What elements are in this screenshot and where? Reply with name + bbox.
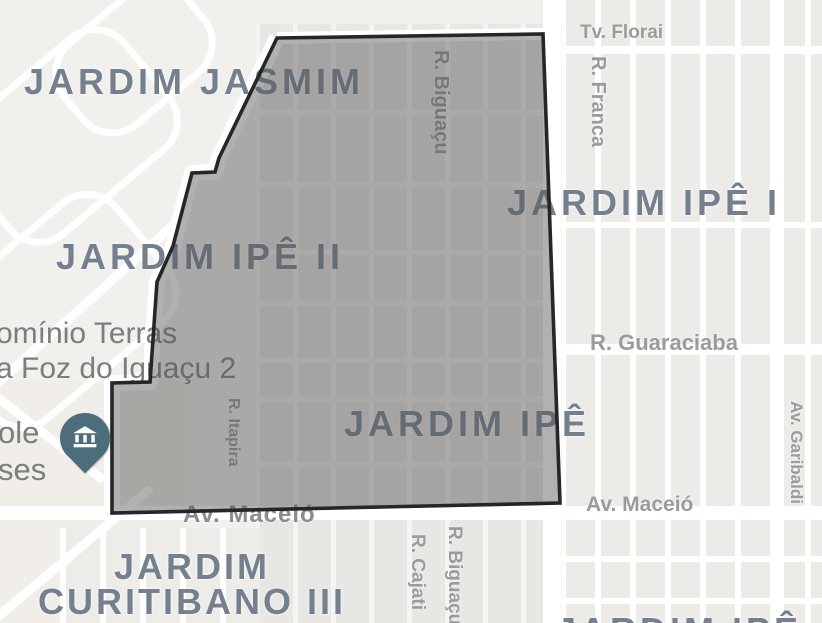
road-av-garibaldi [772, 0, 784, 623]
poi-label-left-line2: ses [0, 451, 46, 488]
district-label-line1: JARDIM [0, 549, 384, 584]
poi-label-left-edge: ole ses [0, 414, 46, 488]
road-center-5 [255, 358, 562, 363]
street-label-av-garibaldi: Av. Garibaldi [786, 401, 806, 504]
district-label-jardim-ipe: JARDIM IPÊ [344, 403, 590, 445]
poi-label-left-line1: ole [0, 414, 46, 451]
road-main-vertical [543, 0, 561, 623]
street-label-av-maceio-left: Av. Maceió [183, 501, 316, 529]
street-label-r-biguacu-top: R. Biguaçu [429, 50, 452, 154]
district-label-line2: CURITIBANO III [0, 584, 384, 619]
street-label-av-maceio-right: Av. Maceió [586, 493, 693, 517]
road-center-7 [255, 462, 562, 468]
museum-icon [72, 425, 98, 449]
district-label-jardim-jasmim: JARDIM JASMIM [24, 61, 364, 103]
district-label-jardim-ipe-ii: JARDIM IPÊ II [56, 236, 344, 278]
street-label-r-itapira: R. Itapira [224, 398, 242, 466]
poi-label-condominio-line1: omínio Terras [0, 316, 236, 351]
poi-label-condominio-line2: a Foz do Iguaçu 2 [0, 351, 236, 386]
district-label-jardim-ipe-i: JARDIM IPÊ I [507, 182, 781, 224]
road-center-4 [255, 300, 562, 306]
map-viewport[interactable]: JARDIM JASMIM JARDIM IPÊ II JARDIM IPÊ I… [0, 0, 822, 623]
street-label-r-cajati: R. Cajati [406, 534, 428, 610]
street-label-r-guaraciaba: R. Guaraciaba [590, 330, 738, 356]
street-label-tv-florai: Tv. Florai [580, 22, 663, 44]
road-center-1 [255, 110, 562, 116]
street-label-r-franca: R. Franca [586, 56, 609, 147]
road-center-6 [255, 396, 562, 402]
district-label-jardim-curitibano-iii: JARDIM CURITIBANO III [0, 549, 384, 619]
poi-label-condominio: omínio Terras a Foz do Iguaçu 2 [0, 316, 236, 386]
street-label-r-biguacu-bottom: R. Biguaçu [443, 526, 465, 623]
district-label-jardim-ipe-bottom: JARDIM IPÊ [556, 610, 802, 623]
